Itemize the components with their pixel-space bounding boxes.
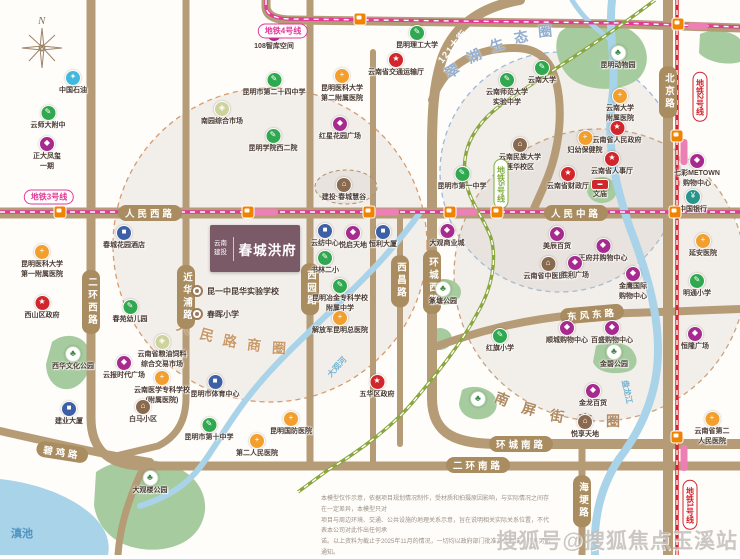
residence-icon: ⌂ bbox=[135, 399, 151, 415]
poi-label: 建投·春城慧谷 bbox=[322, 194, 366, 203]
project-developer: 云南建投 bbox=[213, 240, 227, 256]
residence-icon: ⌂ bbox=[512, 137, 528, 153]
poi-label: 悦享天地 bbox=[571, 431, 599, 440]
poi-office: ■建业大厦 bbox=[55, 401, 83, 427]
project-marker: 云南建投 春城洪府 bbox=[210, 225, 300, 272]
business-circle-label-char: 商 bbox=[246, 334, 262, 356]
poi-label: 文庙 bbox=[591, 191, 609, 200]
poi-label: 美辰百货 bbox=[543, 243, 571, 252]
government-icon: ★ bbox=[609, 120, 625, 136]
mall-icon: ◆ bbox=[689, 153, 705, 169]
park-area bbox=[699, 31, 740, 64]
poi-label: 108智库空间 bbox=[254, 43, 294, 52]
hospital-icon: + bbox=[334, 68, 350, 84]
mall-icon: ◆ bbox=[439, 223, 455, 239]
poi-label: 昆明医科大学 bbox=[321, 85, 363, 94]
poi-government: ★云南省交通运输厅 bbox=[368, 52, 424, 78]
poi-label: 西华文化公园 bbox=[52, 363, 94, 372]
business-circle-label-char: 圈 bbox=[537, 20, 553, 41]
poi-school: ✎云南师范大学实验中学 bbox=[486, 72, 528, 108]
school-icon: ✎ bbox=[499, 72, 515, 88]
poi-label: 中国银行 bbox=[679, 206, 707, 215]
poi-school: ✎春苑幼儿园 bbox=[113, 299, 148, 325]
poi-temple: ▬文庙 bbox=[591, 179, 609, 200]
poi-school: ✎昆明市第一中学 bbox=[438, 166, 487, 192]
poi-mall: ◆百盛购物中心 bbox=[591, 320, 633, 346]
poi-label: 大观商业城 bbox=[430, 240, 465, 249]
bullet-icon bbox=[191, 285, 203, 297]
poi-label: 西山区政府 bbox=[25, 312, 60, 321]
poi-label: 书林二小 bbox=[311, 267, 339, 276]
station-name-banner bbox=[688, 23, 708, 30]
road-label: 人民中路 bbox=[544, 205, 608, 221]
mall-icon: ◆ bbox=[595, 238, 611, 254]
tree-icon: ♣ bbox=[65, 346, 81, 362]
poi-label: 昆明学院西二院 bbox=[249, 145, 298, 154]
station-name-banner bbox=[454, 209, 478, 216]
poi-label: 七彩METOWN bbox=[674, 170, 720, 179]
poi-hospital: +解放军昆明总医院 bbox=[312, 310, 368, 336]
poi-label: 昆明动物园 bbox=[601, 62, 636, 71]
poi-hospital: +云南省第二人民医院 bbox=[695, 411, 730, 447]
school-icon: ✎ bbox=[454, 166, 470, 182]
tree-icon: ♣ bbox=[435, 281, 451, 297]
government-icon: ★ bbox=[369, 374, 385, 390]
poi-label: 春苑幼儿园 bbox=[113, 316, 148, 325]
metro-station-icon bbox=[671, 431, 684, 444]
road-label: 海埂路 bbox=[573, 475, 591, 527]
office-icon: ■ bbox=[207, 374, 223, 390]
poi-label: 金鹰国际 bbox=[619, 283, 647, 292]
mall-icon: ◆ bbox=[332, 116, 348, 132]
compass-rose: N bbox=[16, 12, 68, 74]
watermark: 搜狐号@搜狐焦点玉溪站 bbox=[497, 525, 738, 555]
mall-icon: ◆ bbox=[39, 136, 55, 152]
metro-line-badge: 地铁3号线 bbox=[24, 190, 74, 205]
government-icon: ★ bbox=[604, 151, 620, 167]
poi-label: 红星花园广场 bbox=[319, 133, 361, 142]
hospital-icon: + bbox=[249, 433, 265, 449]
poi-office: ■恒利大厦 bbox=[369, 224, 397, 250]
poi-label: 一期 bbox=[33, 163, 61, 172]
metro-station-icon bbox=[242, 206, 255, 219]
road-label: 环城南路 bbox=[489, 436, 553, 452]
residence-icon: ⌂ bbox=[540, 256, 556, 272]
hospital-icon: + bbox=[283, 411, 299, 427]
poi-hospital: +云南大学附属医院 bbox=[606, 88, 634, 124]
office-icon: ■ bbox=[116, 225, 132, 241]
road-label: 人民西路 bbox=[118, 205, 182, 221]
poi-tree: ♣ bbox=[470, 391, 486, 407]
poi-mall: ◆正大凤玺一期 bbox=[33, 136, 61, 172]
metro-line-badge: 地铁1号线 bbox=[683, 480, 698, 530]
poi-mall: ◆胜利广场 bbox=[561, 255, 589, 281]
poi-label: 第二附属医院 bbox=[321, 95, 363, 104]
poi-label: 金碧公园 bbox=[600, 361, 628, 370]
school-icon: ✎ bbox=[122, 299, 138, 315]
hospital-icon: + bbox=[577, 130, 593, 146]
poi-market: ◈云南省粮油饲料综合交易市场 bbox=[138, 334, 187, 370]
poi-mall: ◆美辰百货 bbox=[543, 226, 571, 252]
location-map: N 云南建投 春城洪府 人民西路人民中路二环西路近华浦路西园路西昌路环城西路北京… bbox=[0, 0, 740, 555]
poi-office: ■春城花园酒店 bbox=[103, 225, 145, 251]
station-name-banner bbox=[681, 445, 688, 471]
school-icon: ✎ bbox=[492, 328, 508, 344]
poi-label: 胜利广场 bbox=[561, 272, 589, 281]
school-icon: ✎ bbox=[409, 25, 425, 41]
poi-label: 南园综合市场 bbox=[201, 118, 243, 127]
school-icon: ✎ bbox=[317, 250, 333, 266]
poi-label: 顺城购物中心 bbox=[546, 337, 588, 346]
poi-label: 综合交易市场 bbox=[138, 361, 187, 370]
metro-line-badge: 地铁5号线 bbox=[494, 159, 509, 209]
poi-label: 昆明市体育中心 bbox=[191, 391, 240, 400]
poi-label: 春城花园酒店 bbox=[103, 242, 145, 251]
temple-icon: ▬ bbox=[591, 179, 609, 190]
poi-label: 云南省第二 bbox=[695, 428, 730, 437]
mall-icon: ◆ bbox=[559, 320, 575, 336]
mall-icon: ◆ bbox=[625, 266, 641, 282]
poi-government: ★云南省财政厅 bbox=[547, 166, 589, 192]
poi-label: 云南省人事厅 bbox=[591, 168, 633, 177]
poi-school: ✎明通小学 bbox=[683, 273, 711, 299]
bullet-label: 春晖小学 bbox=[207, 309, 239, 320]
poi-hospital: +昆明医科大学第二附属医院 bbox=[321, 68, 363, 104]
poi-school: ✎昆明学院西二院 bbox=[249, 128, 298, 154]
poi-school: ✎云师大附中 bbox=[31, 105, 66, 131]
poi-label: 云南省交通运输厅 bbox=[368, 69, 424, 78]
poi-mall: ◆悦启天地 bbox=[339, 225, 367, 251]
tree-icon: ♣ bbox=[606, 344, 622, 360]
poi-label: 金龙百货 bbox=[579, 400, 607, 409]
tree-icon: ♣ bbox=[142, 470, 158, 486]
market-icon: ◈ bbox=[154, 334, 170, 350]
office-icon: ■ bbox=[375, 224, 391, 240]
poi-label: 恒利大厦 bbox=[369, 241, 397, 250]
poi-label: 云南医学专科学校 bbox=[134, 387, 190, 396]
mall-icon: ◆ bbox=[687, 326, 703, 342]
disclaimer-line: 本模型仅作示意，依据项目规划情况制作，受材质和拍摄原因影响，与实际情况之间存在一… bbox=[321, 494, 551, 516]
poi-label: 昆明医科大学 bbox=[21, 261, 63, 270]
poi-label: 红旗小学 bbox=[486, 345, 514, 354]
poi-label: 云南省财政厅 bbox=[547, 183, 589, 192]
government-icon: ★ bbox=[560, 166, 576, 182]
poi-school: ✎昆明市第十中学 bbox=[185, 417, 234, 443]
metro-station-icon bbox=[444, 206, 457, 219]
poi-label: 云纺中心 bbox=[311, 240, 339, 249]
compass: N bbox=[16, 12, 68, 79]
poi-label: 购物中心 bbox=[674, 180, 720, 189]
poi-label: 实验中学 bbox=[486, 99, 528, 108]
project-bullet-item: 昆一中昆华实验学校 bbox=[191, 285, 279, 297]
office-icon: ■ bbox=[61, 401, 77, 417]
residence-icon: ⌂ bbox=[336, 177, 352, 193]
poi-hospital: +第二人民医院 bbox=[236, 433, 278, 459]
school-icon: ✎ bbox=[534, 60, 550, 76]
poi-school: ✎昆明市第二十四中学 bbox=[243, 72, 306, 98]
market-icon: ◈ bbox=[214, 101, 230, 117]
metro-line-badge: 地铁2号线 bbox=[693, 72, 708, 122]
poi-label: 大观楼公园 bbox=[133, 487, 168, 496]
poi-label: 人民医院 bbox=[695, 438, 730, 447]
hospital-icon: + bbox=[695, 233, 711, 249]
bullet-icon bbox=[191, 308, 203, 320]
poi-mall: ◆大观商业城 bbox=[430, 223, 465, 249]
project-bullet-item: 春晖小学 bbox=[191, 308, 239, 320]
poi-label: 购物中心 bbox=[619, 293, 647, 302]
poi-school: ✎红旗小学 bbox=[486, 328, 514, 354]
bullet-label: 昆一中昆华实验学校 bbox=[207, 286, 279, 297]
poi-label: 篆塘公园 bbox=[429, 298, 457, 307]
poi-government: ★西山区政府 bbox=[25, 295, 60, 321]
poi-label: 云师大附中 bbox=[31, 122, 66, 131]
metro-station-icon bbox=[672, 18, 685, 31]
poi-label: 昆明市第一中学 bbox=[438, 183, 487, 192]
road-label: 二环南路 bbox=[446, 457, 510, 473]
road-label: 二环西路 bbox=[82, 270, 100, 334]
hospital-icon: + bbox=[704, 411, 720, 427]
poi-label: 昆明冶金专科学校 bbox=[312, 295, 368, 304]
poi-label: 昆明市第二十四中学 bbox=[243, 89, 306, 98]
station-name-banner bbox=[373, 209, 399, 216]
government-icon: ★ bbox=[388, 52, 404, 68]
poi-tree: ♣篆塘公园 bbox=[429, 281, 457, 307]
poi-mall: ◆顺城购物中心 bbox=[546, 320, 588, 346]
government-icon: ★ bbox=[34, 295, 50, 311]
compass-n-label: N bbox=[37, 15, 46, 27]
poi-bank: ¥中国银行 bbox=[679, 189, 707, 215]
tree-icon: ♣ bbox=[470, 391, 486, 407]
poi-residence: ⌂建投·春城慧谷 bbox=[322, 177, 366, 203]
poi-mall: ◆七彩METOWN购物中心 bbox=[674, 153, 720, 189]
poi-label: 第二人民医院 bbox=[236, 450, 278, 459]
hospital-icon: + bbox=[332, 310, 348, 326]
bank-icon: ¥ bbox=[685, 189, 701, 205]
poi-label: 悦启天地 bbox=[339, 242, 367, 251]
poi-label: 中国石油 bbox=[59, 87, 87, 96]
poi-government: ★云南省人事厅 bbox=[591, 151, 633, 177]
poi-tree: ♣金碧公园 bbox=[600, 344, 628, 370]
mall-icon: ◆ bbox=[585, 383, 601, 399]
project-divider bbox=[233, 237, 234, 261]
poi-tree: ♣昆明动物园 bbox=[601, 45, 636, 71]
poi-residence: ⌂白马小区 bbox=[129, 399, 157, 425]
poi-label: 白马小区 bbox=[129, 416, 157, 425]
poi-label: 明通小学 bbox=[683, 290, 711, 299]
metro-station-icon bbox=[671, 130, 684, 143]
poi-school: ✎昆明冶金专科学校附属中学 bbox=[312, 278, 368, 314]
station-name-banner bbox=[252, 209, 278, 216]
metro-station-icon bbox=[669, 206, 682, 219]
poi-label: 第一附属医院 bbox=[21, 271, 63, 280]
poi-mall: ◆金龙百货 bbox=[579, 383, 607, 409]
poi-school: ✎云南大学 bbox=[528, 60, 556, 86]
road-label: 西昌路 bbox=[391, 255, 409, 307]
school-icon: ✎ bbox=[265, 128, 281, 144]
school-icon: ✎ bbox=[266, 72, 282, 88]
school-icon: ✎ bbox=[332, 278, 348, 294]
road-label: 北京路 bbox=[659, 66, 677, 118]
poi-school: ✎昆明理工大学 bbox=[396, 25, 438, 51]
poi-government: ★五华区政府 bbox=[360, 374, 395, 400]
hospital-icon: + bbox=[34, 244, 50, 260]
poi-school: ✎书林二小 bbox=[311, 250, 339, 276]
poi-label: 云南大学 bbox=[606, 105, 634, 114]
poi-label: 云南省粮油饲料 bbox=[138, 351, 187, 360]
poi-market: ◈南园综合市场 bbox=[201, 101, 243, 127]
poi-residence: ⌂悦享天地 bbox=[571, 414, 599, 440]
poi-label: 云南大学 bbox=[528, 77, 556, 86]
poi-label: 延安医院 bbox=[689, 250, 717, 259]
tree-icon: ♣ bbox=[610, 45, 626, 61]
poi-label: 正大凤玺 bbox=[33, 153, 61, 162]
water-label: 滇池 bbox=[11, 525, 33, 541]
hospital-icon: + bbox=[612, 88, 628, 104]
metro-line-badge: 地铁4号线 bbox=[258, 24, 308, 39]
poi-hospital: +昆明医科大学第一附属医院 bbox=[21, 244, 63, 280]
poi-mall: ◆恒隆广场 bbox=[681, 326, 709, 352]
mall-icon: ◆ bbox=[567, 255, 583, 271]
business-circle-label-char: 圈 bbox=[606, 411, 620, 431]
metro-station-icon bbox=[54, 206, 67, 219]
poi-office: ■昆明市体育中心 bbox=[191, 374, 240, 400]
poi-mall: ◆红星花园广场 bbox=[319, 116, 361, 142]
poi-tree: ♣大观楼公园 bbox=[133, 470, 168, 496]
project-name: 春城洪府 bbox=[239, 239, 297, 259]
business-circle-label-char: 圈 bbox=[271, 338, 286, 359]
mall-icon: ◆ bbox=[549, 226, 565, 242]
school-icon: ✎ bbox=[201, 417, 217, 433]
school-icon: ✎ bbox=[40, 105, 56, 121]
poi-office: ■云纺中心 bbox=[311, 223, 339, 249]
metro-station-icon bbox=[491, 206, 504, 219]
poi-label: 解放军昆明总医院 bbox=[312, 327, 368, 336]
poi-tree: ♣西华文化公园 bbox=[52, 346, 94, 372]
mall-icon: ◆ bbox=[116, 355, 132, 371]
poi-label: 五华区政府 bbox=[360, 391, 395, 400]
poi-label: 昆明理工大学 bbox=[396, 42, 438, 51]
school-icon: ✎ bbox=[689, 273, 705, 289]
mall-icon: ◆ bbox=[345, 225, 361, 241]
poi-mall: ◆金鹰国际购物中心 bbox=[619, 266, 647, 302]
poi-label: 恒隆广场 bbox=[681, 343, 709, 352]
lake-dianchi bbox=[0, 479, 109, 555]
mall-icon: ◆ bbox=[604, 320, 620, 336]
compass-star bbox=[22, 28, 62, 68]
metro-station-icon bbox=[354, 13, 367, 26]
office-icon: ■ bbox=[317, 223, 333, 239]
poi-label: 建业大厦 bbox=[55, 418, 83, 427]
metro-station-icon bbox=[363, 206, 376, 219]
residence-icon: ⌂ bbox=[577, 414, 593, 430]
hospital-icon: + bbox=[154, 370, 170, 386]
poi-label: 云南师范大学 bbox=[486, 89, 528, 98]
poi-label: 昆明市第十中学 bbox=[185, 434, 234, 443]
poi-hospital: +延安医院 bbox=[689, 233, 717, 259]
